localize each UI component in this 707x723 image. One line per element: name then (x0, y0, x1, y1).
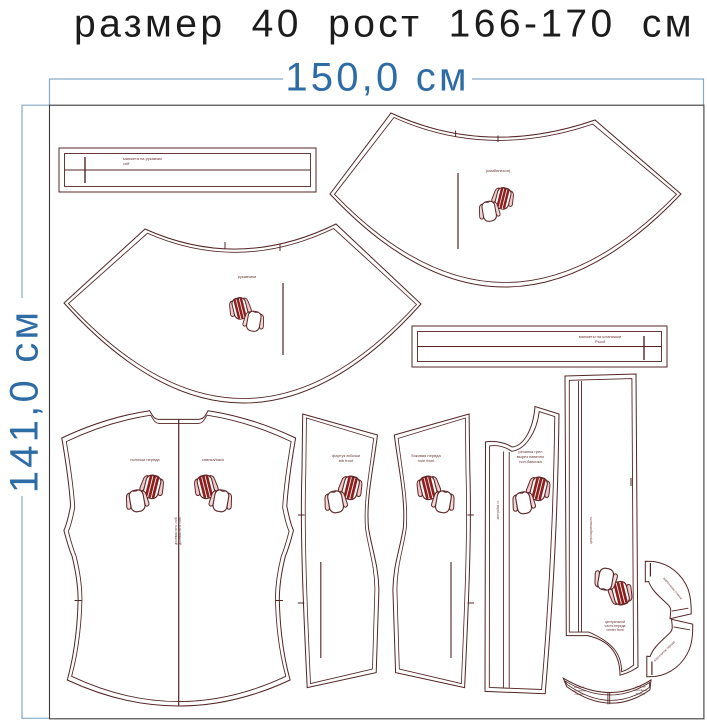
svg-text:рукавчики: рукавчики (238, 274, 257, 279)
svg-text:спинки: спинки (575, 692, 584, 696)
svg-text:center front: center front (606, 628, 623, 632)
svg-text:cuff: cuff (123, 161, 130, 166)
svg-text:hole front: hole front (418, 458, 436, 463)
svg-text:спинка/back: спинка/back (202, 457, 224, 462)
svg-text:цельнокроеная пл.: цельнокроеная пл. (589, 516, 593, 544)
svg-text:переда: переда (636, 692, 646, 696)
svg-text:воротничок спинки: воротничок спинки (662, 576, 683, 600)
svg-text:141,0 см: 141,0 см (3, 309, 47, 493)
svg-text:пол.бавочка: пол.бавочка (519, 459, 542, 464)
svg-text:полочки переда: полочки переда (130, 457, 160, 462)
svg-text:застройка ст.: застройка ст. (496, 500, 500, 519)
svg-text:долевая нить сгиб: долевая нить сгиб (178, 517, 182, 544)
svg-text:Pscuf: Pscuf (595, 339, 606, 344)
svg-text:воротничок переда: воротничок переда (653, 640, 676, 663)
svg-text:долевая нить сгиб: долевая нить сгиб (174, 517, 178, 544)
svg-text:(комбинезон): (комбинезон) (486, 168, 511, 173)
svg-text:размер 40 рост 166-170 см: размер 40 рост 166-170 см (74, 3, 695, 46)
svg-text:bib front: bib front (339, 458, 354, 463)
svg-text:150,0 см: 150,0 см (285, 56, 469, 100)
